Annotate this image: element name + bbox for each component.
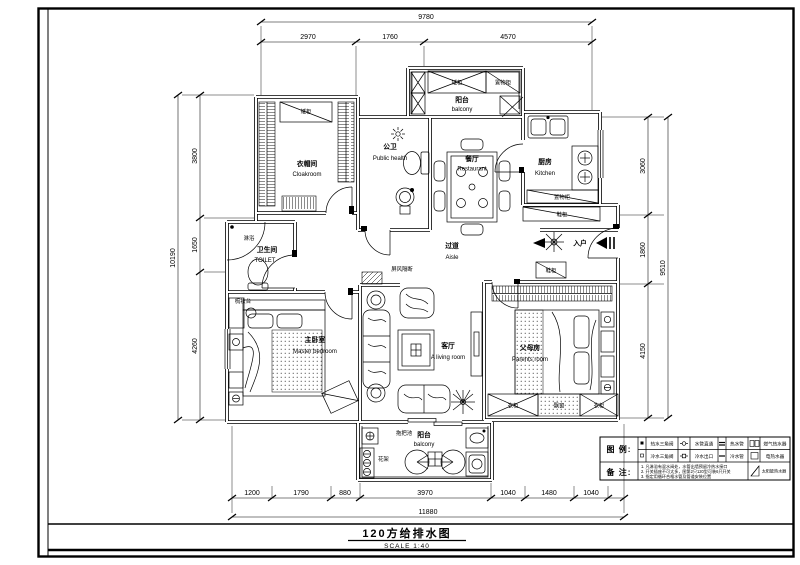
gas-heater-icon (750, 441, 759, 447)
legend-electric-heater: 电热水器 (766, 453, 785, 460)
label-bath-en: Public health (373, 156, 407, 162)
dim-left-total: 10190 (170, 248, 177, 268)
label-toilet-en: TOILET (255, 258, 276, 264)
label-aisle-zh: 过道 (445, 241, 459, 250)
label-wardrobe-left: 衣柜 (508, 402, 519, 410)
balcony-chairs (405, 450, 465, 474)
legend-title: 图 例: (607, 444, 632, 454)
dim-top-total: 9780 (418, 14, 434, 21)
label-flower-rack: 花架 (378, 455, 389, 463)
kitchen-sink (528, 116, 568, 138)
label-living-en: A living room (431, 355, 465, 361)
dim-bottom-5: 1040 (500, 490, 516, 497)
sliding-door-balcony (408, 419, 462, 426)
living-tv-cabinet (471, 312, 482, 376)
label-master-en: Master bedroom (293, 349, 337, 355)
living-coffee-table (398, 330, 434, 370)
balcony-wash-area (466, 428, 488, 476)
cold-valve-icon (641, 454, 644, 457)
label-low-cabinet-balcony: 矮柜 (452, 79, 463, 87)
label-dresser: 梳妆台 (235, 297, 251, 305)
dim-left-3: 4260 (192, 338, 199, 354)
label-balcony-bottom-en: balcony (414, 442, 435, 448)
label-toilet-zh: 卫生间 (257, 245, 278, 254)
label-shower: 淋浴 (244, 234, 255, 242)
label-cloakroom-en: Cloakroom (292, 172, 321, 178)
label-balcony-top-zh: 阳台 (455, 95, 469, 104)
legend-note-3: 3. 指定用循环合格水管及管道安装位置 (641, 473, 711, 479)
entry-arrow-icon (533, 238, 545, 248)
screen-partition (362, 272, 382, 284)
label-entry: 入户 (573, 239, 587, 248)
label-parents-zh: 父母房 (519, 343, 541, 352)
parents-bed (515, 310, 614, 394)
kitchen-stove (572, 146, 598, 190)
dim-top-3: 4570 (500, 34, 516, 41)
label-kitchen-zh: 厨房 (538, 157, 552, 166)
label-master-zh: 主卧室 (305, 335, 326, 344)
dim-right-1: 3060 (640, 158, 647, 174)
drawing-scale: SCALE 1:40 (384, 543, 430, 550)
legend-hot-valve: 热水三角阀 (651, 441, 674, 448)
living-plant-icon (451, 390, 475, 414)
dim-top-1: 2970 (300, 34, 316, 41)
label-parents-en: Parents room (512, 357, 548, 363)
bath-toilet (404, 152, 430, 175)
dim-top-2: 1760 (382, 34, 398, 41)
dimensions-right: 9510 3060 1860 4150 (602, 114, 672, 421)
floorplan-sheet: 120方给排水图 SCALE 1:40 9780 2970 1760 4570 … (0, 0, 800, 565)
label-bay-window: 飘窗 (554, 402, 565, 410)
dining-table (434, 139, 510, 235)
dim-right-total: 9510 (660, 260, 667, 276)
balcony-mop-pool (362, 428, 378, 444)
legend-pipe-through: 水管直通 (695, 441, 714, 448)
parents-wardrobe-top (492, 286, 612, 301)
label-screen-partition: 屏风隔断 (391, 265, 413, 273)
label-balcony-bottom-zh: 阳台 (417, 430, 431, 439)
hot-valve-icon (641, 442, 644, 445)
label-cloakroom-zh: 衣帽间 (297, 159, 318, 168)
dim-right-3: 4150 (640, 343, 647, 359)
master-rug (322, 381, 358, 414)
legend-cold-pipe: 冷水管 (730, 453, 744, 460)
furniture (229, 71, 618, 478)
label-balcony-top-en: balcony (452, 107, 473, 113)
dim-bottom-4: 3970 (417, 490, 433, 497)
label-mop-pool: 拖把池 (396, 429, 413, 437)
entry-plant-icon (544, 232, 564, 252)
label-wardrobe-right: 衣柜 (594, 402, 605, 410)
bath-basin (396, 188, 414, 214)
legend-cold-valve: 冷水三角阀 (651, 453, 674, 460)
door-master (325, 292, 352, 319)
door-cloakroom (326, 187, 352, 213)
pipe-through-icon (680, 442, 688, 446)
legend-solar-heater: 太阳能热水器 (762, 468, 787, 474)
dim-bottom-7: 1040 (583, 490, 599, 497)
window-master-left (224, 329, 232, 369)
cloakroom-wardrobes (259, 102, 354, 211)
label-low-cabinet-cloak: 矮柜 (301, 108, 312, 116)
dim-bottom-6: 1480 (541, 490, 557, 497)
label-bath-zh: 公卫 (383, 143, 397, 151)
hot-pipe-icon (719, 443, 725, 446)
dim-left-2: 1650 (192, 237, 199, 253)
label-aisle-en: Aisle (445, 255, 459, 261)
legend-hot-pipe: 热水管 (730, 441, 744, 448)
label-storage-balcony: 置物柜 (495, 79, 512, 87)
door-public-bath (365, 230, 390, 255)
label-shoe-kitchen: 鞋柜 (557, 211, 568, 219)
label-dining-zh: 餐厅 (464, 154, 479, 163)
label-dining-en: Restaurant (457, 167, 487, 173)
legend-gas-heater: 燃气热水器 (764, 441, 787, 448)
electric-heater-icon (751, 453, 758, 460)
living-sofa-bottom (398, 385, 450, 413)
label-living-zh: 客厅 (440, 341, 455, 350)
dim-right-2: 1860 (640, 242, 647, 258)
legend-notes-title: 备 注: (606, 467, 632, 477)
legend-cold-outlet: 冷水出口 (695, 453, 714, 460)
living-armchair-top (400, 288, 434, 318)
legend-table: 图 例: 备 注: 热水三角阀 冷水三角阀 水管直通 冷水出口 热水管 冷水管 … (600, 437, 790, 480)
entry-door-symbol (596, 237, 614, 249)
drawing-title: 120方给排水图 (362, 526, 451, 540)
dim-bottom-total: 11880 (419, 509, 438, 516)
dim-left-1: 3800 (192, 148, 199, 164)
label-storage-kitchen: 置物柜 (554, 193, 571, 201)
title-block: 120方给排水图 SCALE 1:40 (348, 526, 466, 550)
dim-bottom-3: 880 (339, 490, 351, 497)
bath-lamp-icon (391, 127, 405, 141)
label-kitchen-en: Kitchen (535, 171, 555, 177)
label-shoe-entry: 鞋柜 (546, 267, 557, 275)
dim-bottom-2: 1790 (293, 490, 309, 497)
living-sofa-left (363, 291, 390, 402)
cold-outlet-icon (680, 454, 688, 458)
dim-bottom-1: 1200 (244, 490, 260, 497)
